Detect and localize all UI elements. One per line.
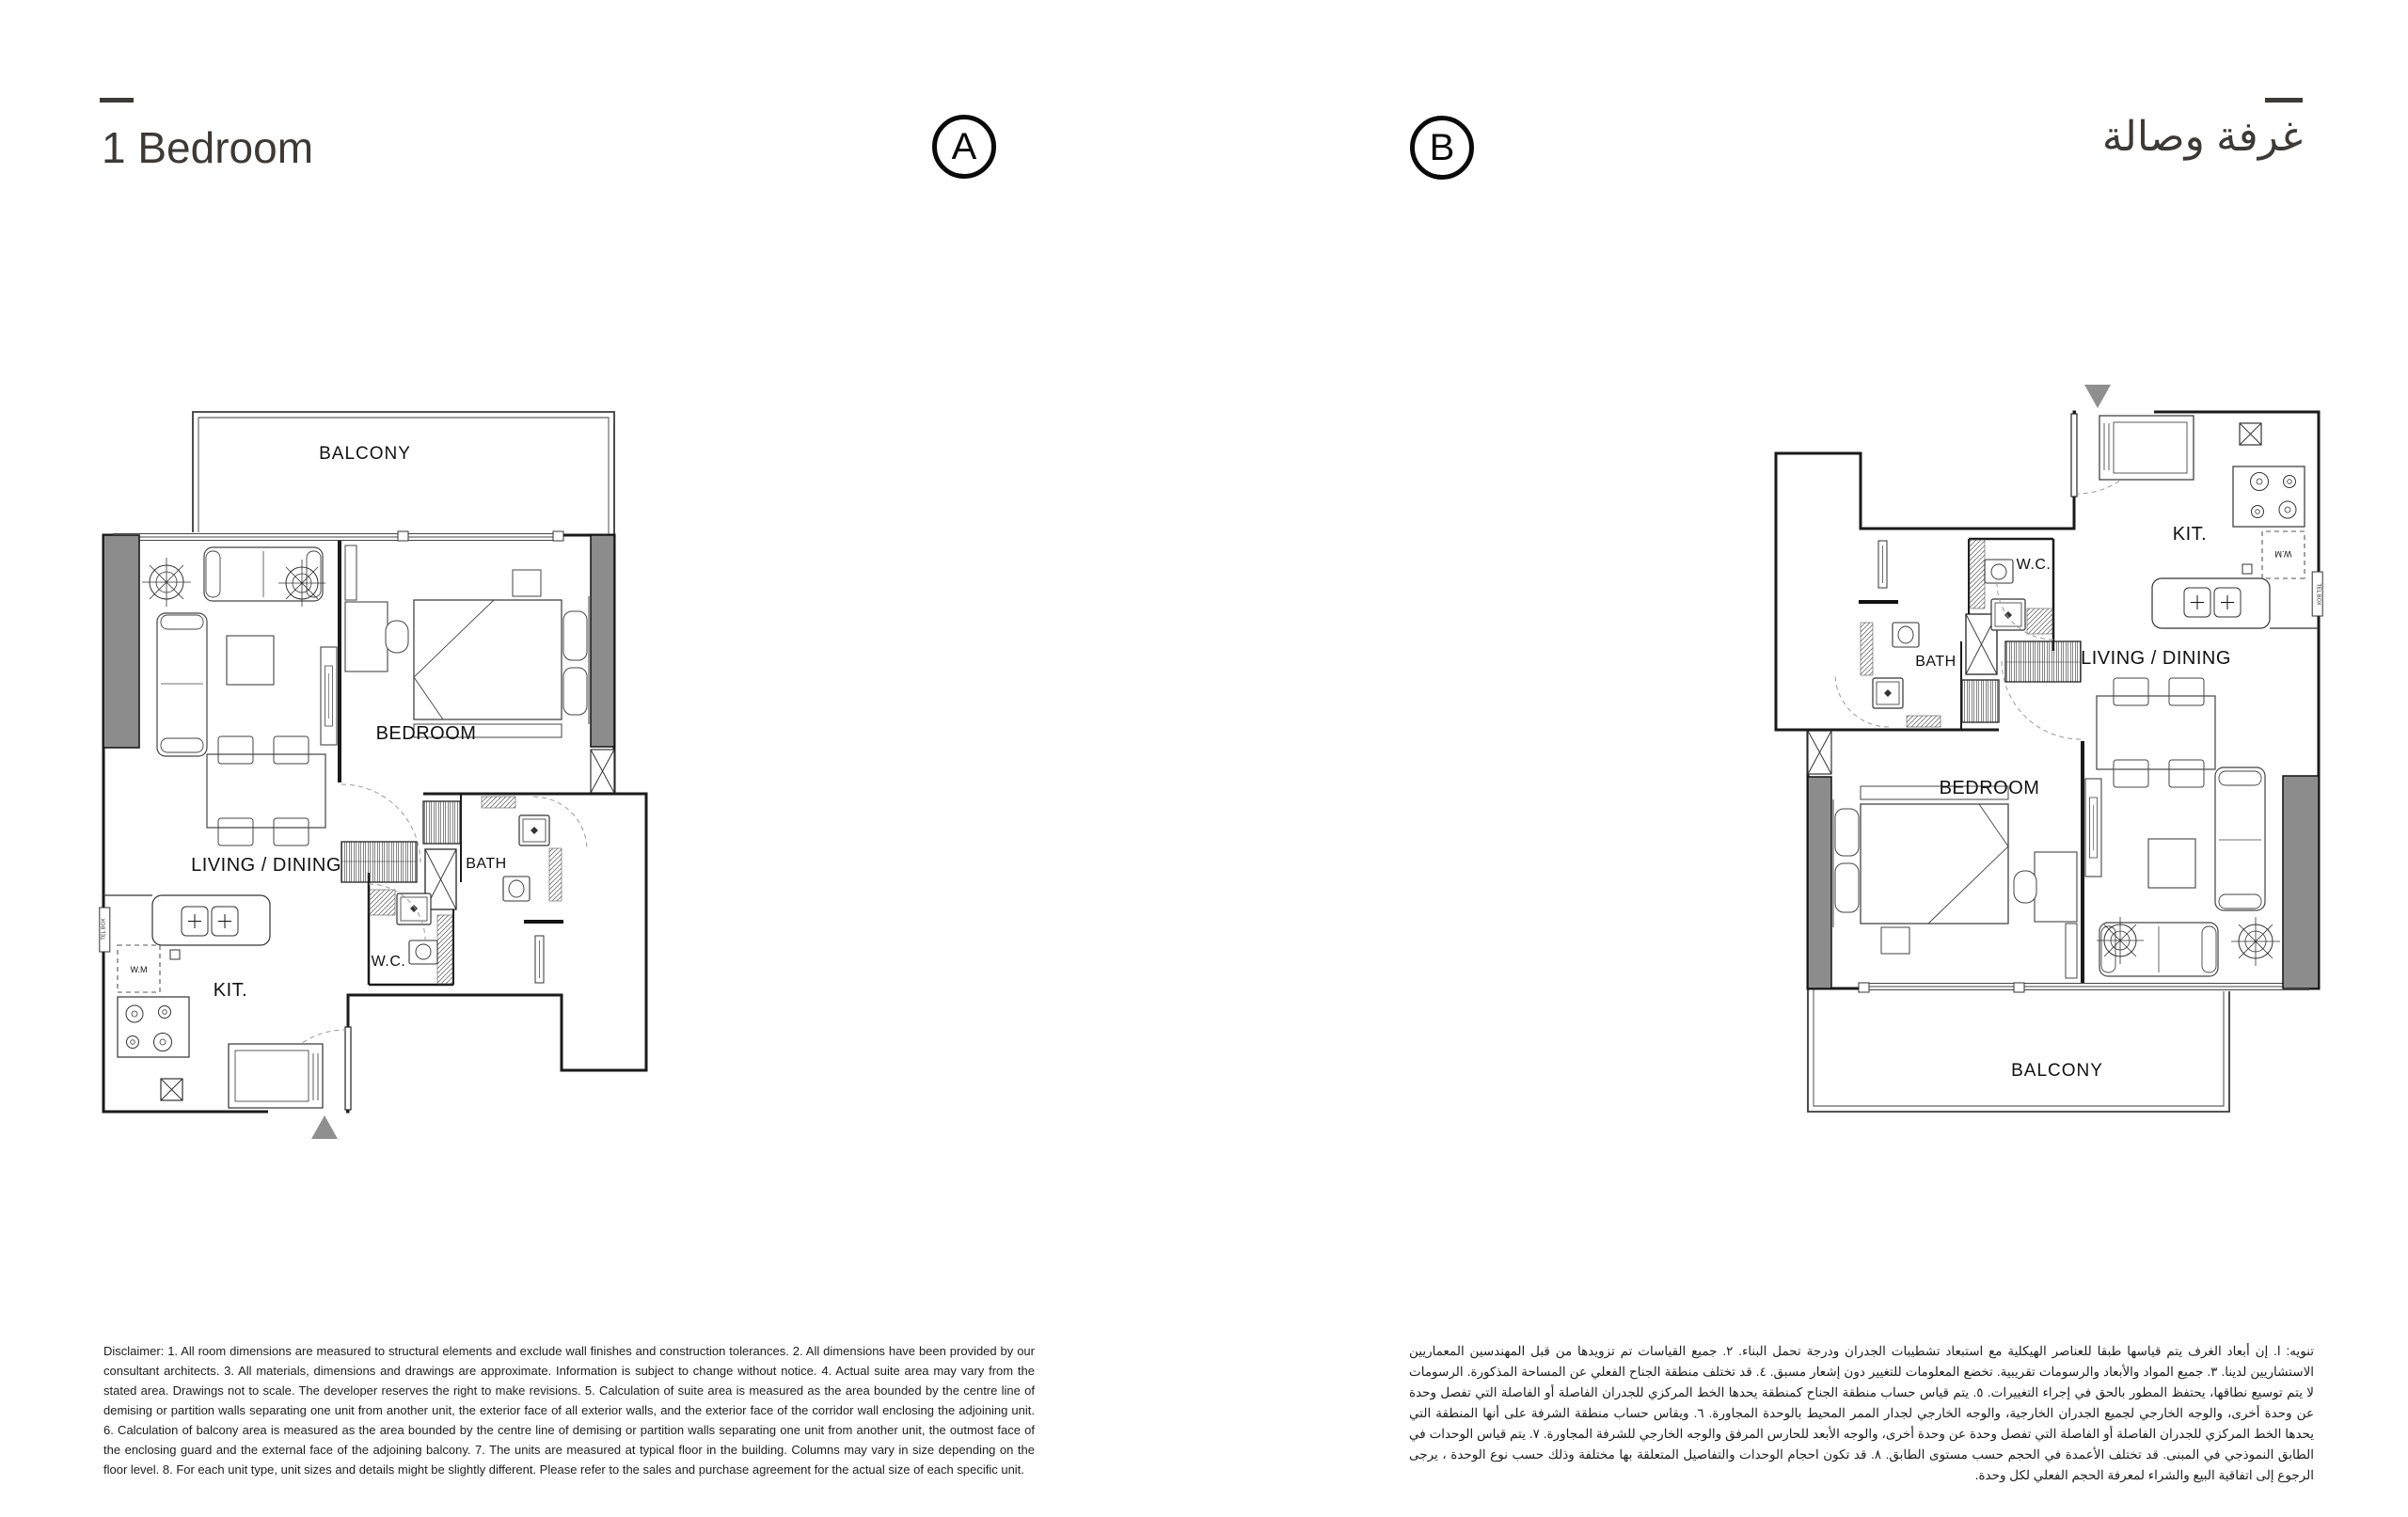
floorplan-sheet: 1 Bedroom A B غرفة وصالة: [0, 0, 2408, 1517]
room-label-wc-b: W.C.: [2017, 557, 2052, 573]
unit-b-badge: B: [1410, 116, 1474, 180]
unit-b-label: B: [1430, 127, 1455, 169]
floor-plan-a: W.M: [99, 395, 654, 1147]
floor-plan-b: BALCONY BEDROOM LIVING / DINING KIT. W.C…: [1768, 376, 2323, 1129]
unit-a-badge: A: [932, 115, 996, 179]
room-label-bedroom-a: BEDROOM: [376, 723, 477, 744]
room-label-bedroom-b: BEDROOM: [1940, 778, 2040, 798]
room-label-living-a: LIVING / DINING: [191, 855, 341, 876]
room-label-kitchen-a: KIT.: [214, 980, 247, 1001]
room-label-bath-b: BATH: [1915, 654, 1956, 670]
page-title-ar: غرفة وصالة: [2102, 113, 2303, 161]
unit-a-label: A: [952, 126, 977, 168]
room-label-kitchen-b: KIT.: [2173, 524, 2207, 545]
title-dash-en: [100, 98, 134, 103]
disclaimer-en: Disclaimer: 1. All room dimensions are m…: [103, 1341, 1035, 1479]
room-label-bath-a: BATH: [466, 856, 506, 872]
disclaimer-ar: تنويه: ا. إن أبعاد الغرف يتم قياسها طبقا…: [1409, 1341, 2314, 1486]
room-label-living-b: LIVING / DINING: [2081, 648, 2231, 669]
page-title-en: 1 Bedroom: [102, 122, 313, 173]
room-label-wc-a: W.C.: [372, 954, 406, 970]
room-label-balcony-a: BALCONY: [319, 444, 411, 464]
room-label-balcony-b: BALCONY: [2011, 1061, 2103, 1081]
title-dash-ar: [2265, 98, 2303, 103]
